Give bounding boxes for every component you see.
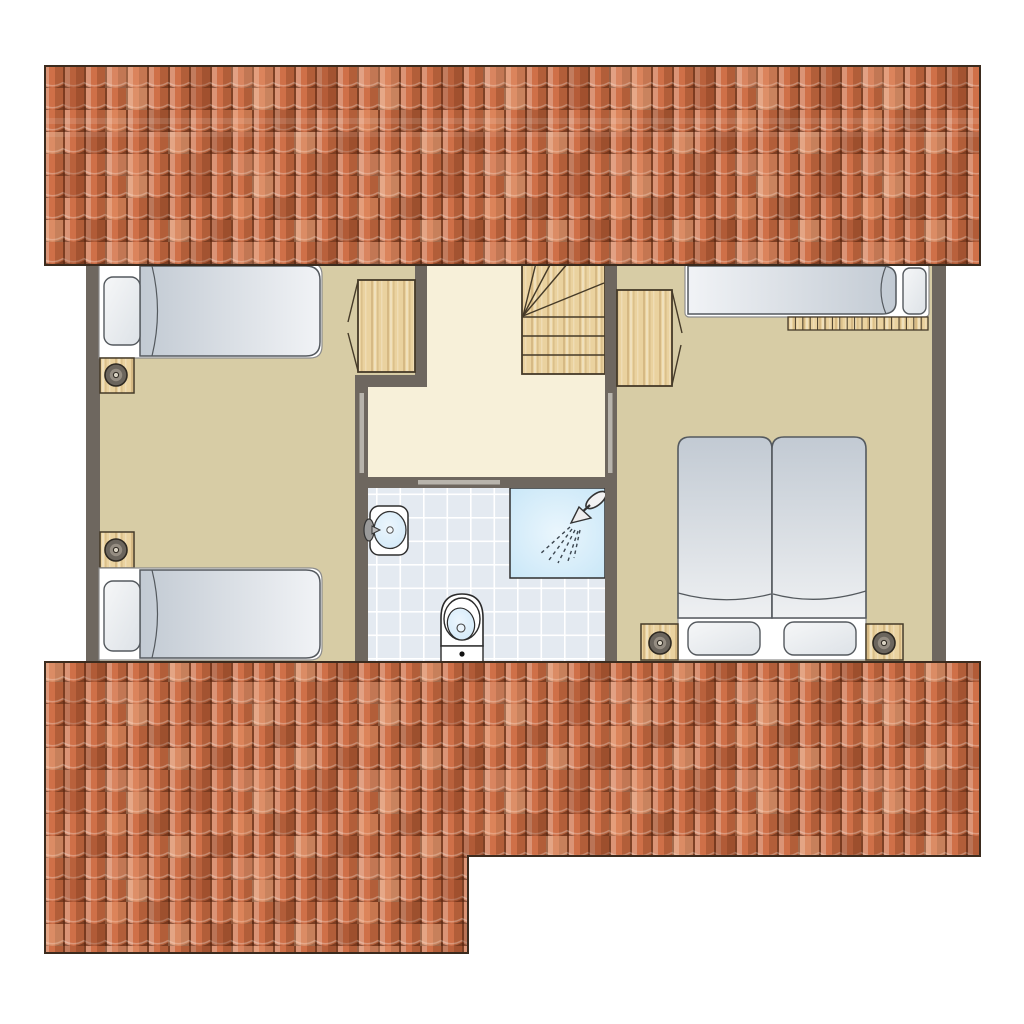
- single-bed-bottom-left: [99, 568, 322, 660]
- bed-pillow: [784, 622, 856, 655]
- basin-drain: [387, 527, 393, 533]
- floorplan-canvas: [0, 0, 1024, 1024]
- toilet-drain: [457, 624, 465, 632]
- bed-blanket: [688, 266, 896, 314]
- mattress-right: [772, 437, 866, 618]
- nightstand: [641, 624, 678, 660]
- wardrobe-left: [348, 280, 415, 372]
- nightstand: [866, 624, 903, 660]
- roof-band-top: [45, 66, 980, 265]
- flush-button: [459, 651, 464, 656]
- mattress-left: [678, 437, 772, 618]
- door-opening-bedroom-left: [360, 393, 365, 473]
- door-opening-bathroom: [418, 480, 500, 485]
- bed-blanket: [140, 570, 320, 658]
- bed-pillow: [688, 622, 760, 655]
- roof-band-bottom: [45, 662, 980, 953]
- nightstand: [100, 532, 134, 568]
- single-bed-right: [685, 263, 929, 317]
- staircase: [522, 262, 605, 374]
- radiator-slats: [788, 317, 928, 330]
- bed-pillow: [903, 268, 926, 314]
- double-bed: [678, 437, 866, 660]
- toilet: [441, 594, 483, 662]
- wall-hall-upper-left: [415, 262, 427, 387]
- floorplan-drawing: [0, 0, 1024, 1024]
- wall-outer-left: [86, 262, 100, 662]
- wardrobe-right: [617, 290, 682, 386]
- door-opening-bedroom-right: [608, 393, 613, 473]
- wall-outer-right: [932, 262, 946, 662]
- washbasin: [364, 506, 408, 555]
- single-bed-top-left: [99, 263, 322, 358]
- nightstand: [100, 358, 134, 393]
- shower: [510, 488, 609, 578]
- bed-pillow: [104, 581, 140, 651]
- bed-blanket: [140, 266, 320, 356]
- bed-pillow: [104, 277, 140, 345]
